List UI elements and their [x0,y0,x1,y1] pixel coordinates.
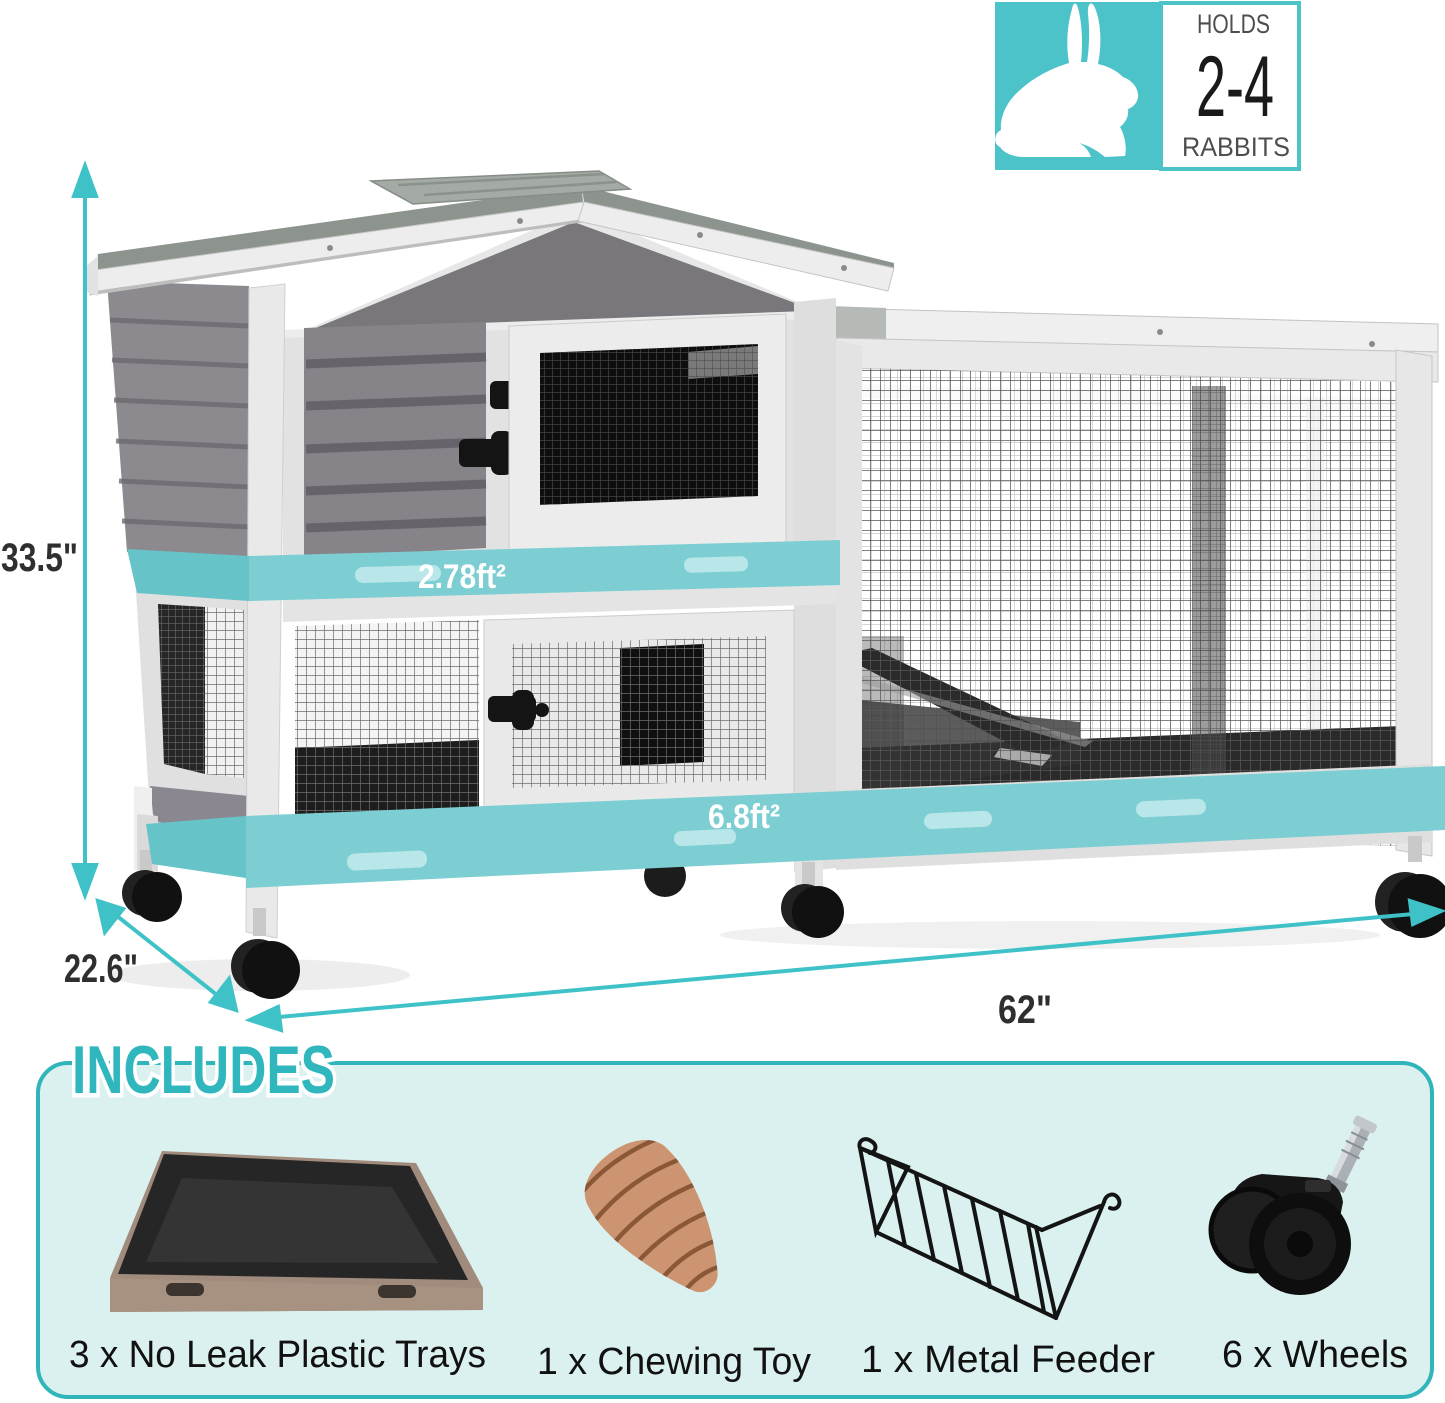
svg-text:1 x Metal Feeder: 1 x Metal Feeder [861,1339,1155,1381]
svg-text:HOLDS: HOLDS [1197,9,1270,39]
svg-text:6.8ft²: 6.8ft² [708,798,780,836]
svg-text:6 x Wheels: 6 x Wheels [1222,1334,1408,1376]
svg-text:3 x No Leak Plastic Trays: 3 x No Leak Plastic Trays [69,1334,486,1376]
svg-text:2.78ft²: 2.78ft² [418,558,506,596]
svg-text:2-4: 2-4 [1196,39,1274,135]
svg-text:INCLUDES: INCLUDES [72,1032,335,1108]
svg-text:1 x Chewing Toy: 1 x Chewing Toy [537,1341,811,1383]
svg-text:RABBITS: RABBITS [1182,132,1290,162]
svg-text:62": 62" [998,988,1052,1032]
svg-text:22.6": 22.6" [64,947,138,991]
svg-text:33.5": 33.5" [1,536,78,580]
